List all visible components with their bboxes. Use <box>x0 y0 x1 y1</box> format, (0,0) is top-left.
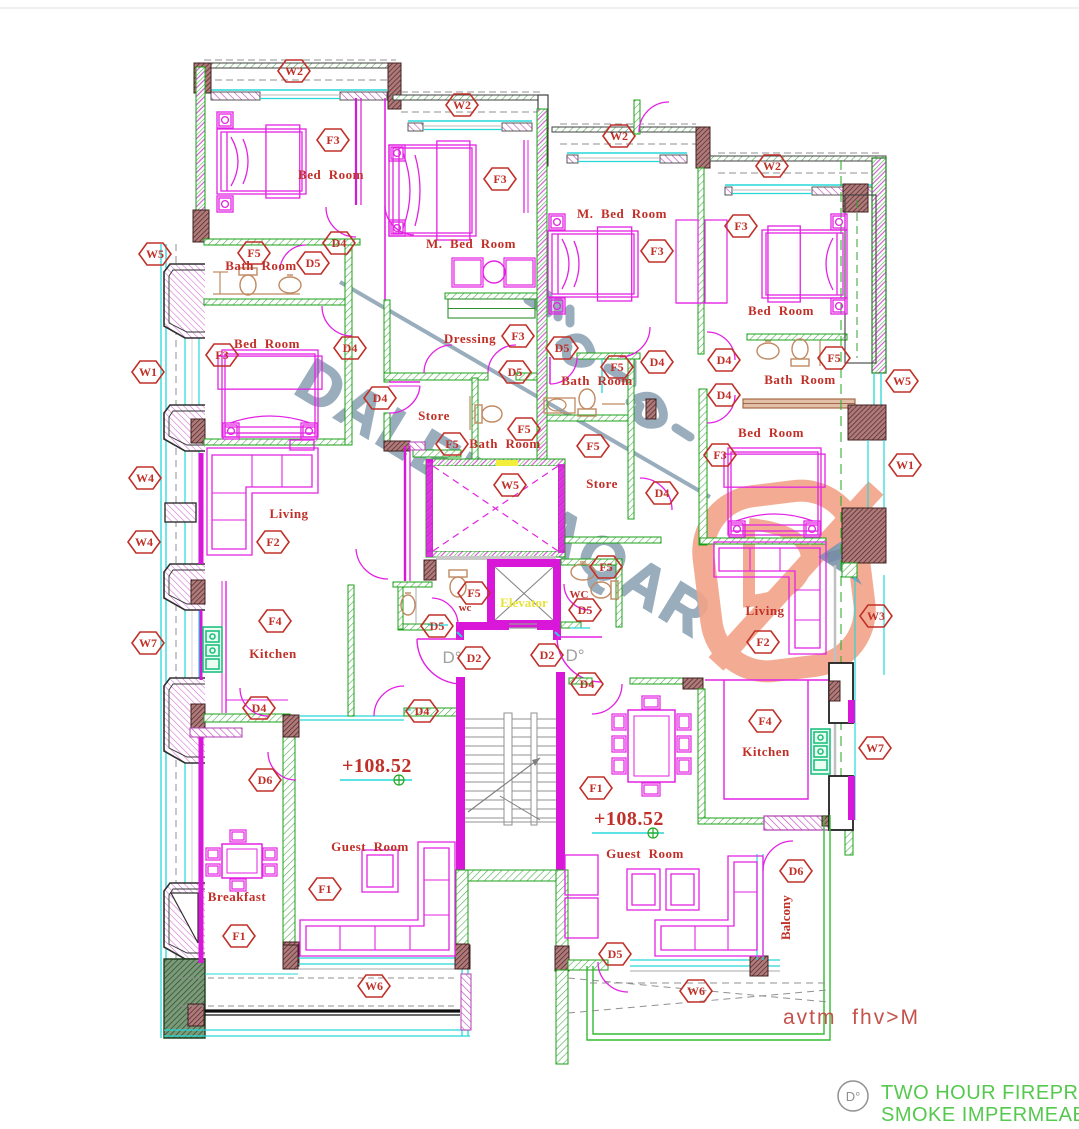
svg-text:W2: W2 <box>453 98 471 112</box>
svg-text:Living: Living <box>269 506 308 521</box>
svg-text:M. Bed Room: M. Bed Room <box>577 206 667 221</box>
svg-text:F5: F5 <box>247 246 260 260</box>
svg-text:D4: D4 <box>415 704 430 718</box>
svg-text:W5: W5 <box>146 247 164 261</box>
svg-text:W4: W4 <box>136 471 154 485</box>
svg-text:W7: W7 <box>139 636 157 650</box>
svg-text:D5: D5 <box>306 256 321 270</box>
svg-text:F5: F5 <box>586 439 599 453</box>
svg-text:D5: D5 <box>578 603 593 617</box>
svg-text:D°: D° <box>846 1089 861 1104</box>
svg-text:+108.52: +108.52 <box>342 755 412 777</box>
svg-text:W5: W5 <box>893 374 911 388</box>
svg-text:Bath Room: Bath Room <box>469 436 540 451</box>
svg-text:D4: D4 <box>655 486 670 500</box>
svg-text:F2: F2 <box>756 635 769 649</box>
svg-text:Bed Room: Bed Room <box>234 336 300 351</box>
svg-text:SMOKE IMPERMEABL: SMOKE IMPERMEABL <box>881 1104 1079 1126</box>
svg-text:F5: F5 <box>599 560 612 574</box>
svg-text:W4: W4 <box>135 535 153 549</box>
svg-text:D6: D6 <box>258 773 273 787</box>
svg-text:Kitchen: Kitchen <box>249 646 297 661</box>
svg-text:F5: F5 <box>517 422 530 436</box>
svg-text:F2: F2 <box>266 535 279 549</box>
svg-text:F3: F3 <box>326 133 339 147</box>
svg-text:F5: F5 <box>467 586 480 600</box>
svg-text:F5: F5 <box>445 437 458 451</box>
svg-text:D4: D4 <box>717 353 732 367</box>
svg-text:Living: Living <box>745 603 784 618</box>
svg-text:W6: W6 <box>687 984 705 998</box>
svg-text:W3: W3 <box>867 609 885 623</box>
svg-text:D4: D4 <box>373 391 388 405</box>
svg-text:D5: D5 <box>508 365 523 379</box>
svg-text:D4: D4 <box>332 236 347 250</box>
svg-text:W2: W2 <box>285 64 303 78</box>
svg-text:+108.52: +108.52 <box>594 808 664 830</box>
svg-text:D2: D2 <box>467 651 482 665</box>
svg-text:W5: W5 <box>501 478 519 492</box>
svg-text:F3: F3 <box>511 329 524 343</box>
svg-text:F4: F4 <box>268 614 281 628</box>
svg-text:Store: Store <box>418 408 450 423</box>
svg-text:Kitchen: Kitchen <box>742 744 790 759</box>
svg-text:W7: W7 <box>866 741 884 755</box>
svg-text:Bed Room: Bed Room <box>738 425 804 440</box>
svg-text:F5: F5 <box>827 351 840 365</box>
svg-text:F1: F1 <box>318 882 331 896</box>
svg-text:D4: D4 <box>343 341 358 355</box>
svg-text:Store: Store <box>586 476 618 491</box>
svg-text:F3: F3 <box>215 348 228 362</box>
svg-text:F3: F3 <box>493 172 506 186</box>
svg-text:avtm fhv>M: avtm fhv>M <box>783 1006 920 1029</box>
svg-text:F1: F1 <box>589 781 602 795</box>
svg-text:Bed Room: Bed Room <box>748 303 814 318</box>
svg-text:D4: D4 <box>252 701 267 715</box>
svg-text:W2: W2 <box>763 159 781 173</box>
svg-text:W6: W6 <box>365 979 383 993</box>
svg-text:D5: D5 <box>430 619 445 633</box>
svg-text:D5: D5 <box>555 341 570 355</box>
svg-text:Bath Room: Bath Room <box>561 373 632 388</box>
svg-text:F4: F4 <box>758 714 771 728</box>
svg-text:F3: F3 <box>650 244 663 258</box>
svg-text:Bath Room: Bath Room <box>764 372 835 387</box>
svg-text:F1: F1 <box>232 929 245 943</box>
svg-text:W1: W1 <box>139 365 157 379</box>
svg-text:Guest Room: Guest Room <box>331 839 409 854</box>
svg-text:Dressing: Dressing <box>444 331 496 346</box>
svg-text:F3: F3 <box>713 448 726 462</box>
svg-text:Guest Room: Guest Room <box>606 846 684 861</box>
svg-text:W2: W2 <box>610 129 628 143</box>
svg-text:D4: D4 <box>580 677 595 691</box>
svg-text:Balcony: Balcony <box>778 895 793 940</box>
svg-text:D5: D5 <box>608 947 623 961</box>
svg-text:Bath Room: Bath Room <box>225 258 296 273</box>
svg-text:Breakfast: Breakfast <box>208 889 267 904</box>
svg-text:F5: F5 <box>610 360 623 374</box>
svg-text:D°: D° <box>565 646 584 665</box>
svg-text:D4: D4 <box>717 388 732 402</box>
svg-text:M. Bed Room: M. Bed Room <box>426 236 516 251</box>
svg-text:Bed Room: Bed Room <box>298 167 364 182</box>
svg-text:D2: D2 <box>540 648 555 662</box>
svg-text:D6: D6 <box>789 864 804 878</box>
svg-text:D4: D4 <box>650 355 665 369</box>
svg-text:F3: F3 <box>734 219 747 233</box>
svg-text:Elevator: Elevator <box>500 595 548 610</box>
svg-text:W1: W1 <box>896 458 914 472</box>
svg-text:TWO HOUR FIREPROO: TWO HOUR FIREPROO <box>881 1082 1079 1104</box>
